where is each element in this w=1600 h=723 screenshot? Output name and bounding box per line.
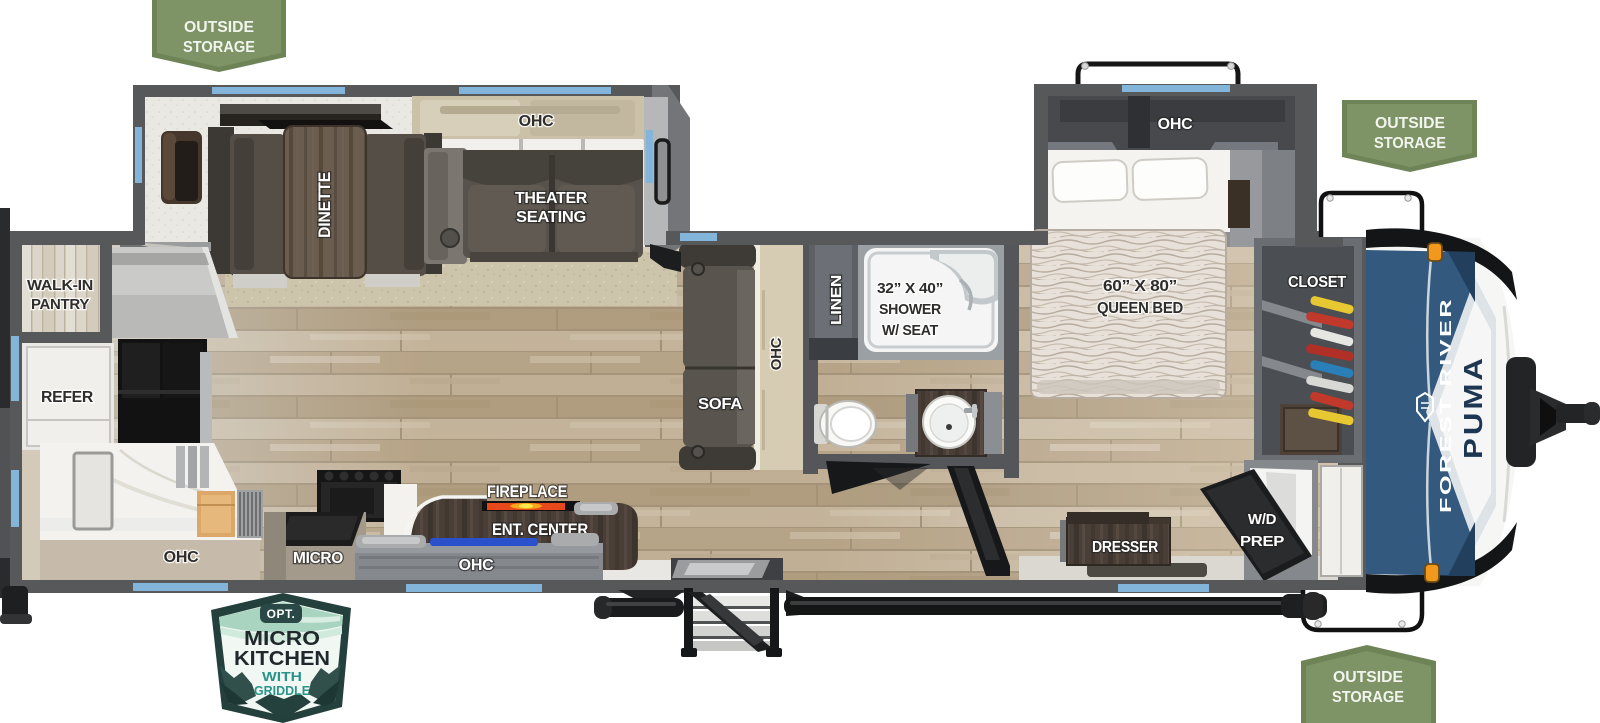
svg-text:STORAGE: STORAGE bbox=[183, 39, 255, 56]
svg-text:OUTSIDE: OUTSIDE bbox=[1375, 115, 1445, 132]
svg-text:DRESSER: DRESSER bbox=[1092, 539, 1159, 556]
svg-text:W/D: W/D bbox=[1248, 511, 1277, 528]
svg-text:OHC: OHC bbox=[459, 557, 494, 574]
svg-text:OHC: OHC bbox=[519, 113, 554, 130]
svg-text:SEATING: SEATING bbox=[516, 209, 586, 226]
svg-text:WITH: WITH bbox=[262, 669, 302, 684]
svg-text:MICRO: MICRO bbox=[244, 628, 320, 650]
svg-text:PANTRY: PANTRY bbox=[31, 296, 89, 313]
svg-text:OUTSIDE: OUTSIDE bbox=[184, 19, 254, 36]
svg-text:WALK-IN: WALK-IN bbox=[27, 277, 93, 294]
svg-text:OUTSIDE: OUTSIDE bbox=[1333, 669, 1403, 686]
svg-text:CLOSET: CLOSET bbox=[1288, 274, 1347, 291]
svg-text:OHC: OHC bbox=[164, 549, 199, 566]
svg-text:W/ SEAT: W/ SEAT bbox=[882, 322, 938, 339]
svg-text:GRIDDLE: GRIDDLE bbox=[254, 683, 310, 698]
svg-text:KITCHEN: KITCHEN bbox=[234, 648, 330, 670]
svg-text:LINEN: LINEN bbox=[828, 275, 845, 325]
svg-text:PUMA: PUMA bbox=[1458, 355, 1488, 459]
svg-text:PREP: PREP bbox=[1240, 533, 1284, 550]
svg-text:OHC: OHC bbox=[768, 337, 785, 370]
svg-text:32” X 40”: 32” X 40” bbox=[877, 280, 943, 297]
svg-text:FIREPLACE: FIREPLACE bbox=[487, 482, 567, 501]
svg-text:60” X 80”: 60” X 80” bbox=[1103, 278, 1177, 295]
svg-text:SOFA: SOFA bbox=[698, 396, 743, 413]
svg-text:STORAGE: STORAGE bbox=[1332, 689, 1404, 706]
svg-text:DINETTE: DINETTE bbox=[315, 172, 334, 238]
svg-text:REFER: REFER bbox=[41, 389, 94, 406]
svg-text:THEATER: THEATER bbox=[515, 190, 587, 207]
svg-text:OPT.: OPT. bbox=[267, 607, 296, 621]
svg-text:STORAGE: STORAGE bbox=[1374, 135, 1446, 152]
svg-text:MICRO: MICRO bbox=[293, 550, 343, 567]
svg-text:OHC: OHC bbox=[1158, 116, 1193, 133]
svg-text:FOREST RIVER: FOREST RIVER bbox=[1438, 297, 1455, 513]
svg-text:QUEEN BED: QUEEN BED bbox=[1097, 300, 1183, 317]
svg-text:SHOWER: SHOWER bbox=[879, 301, 941, 318]
